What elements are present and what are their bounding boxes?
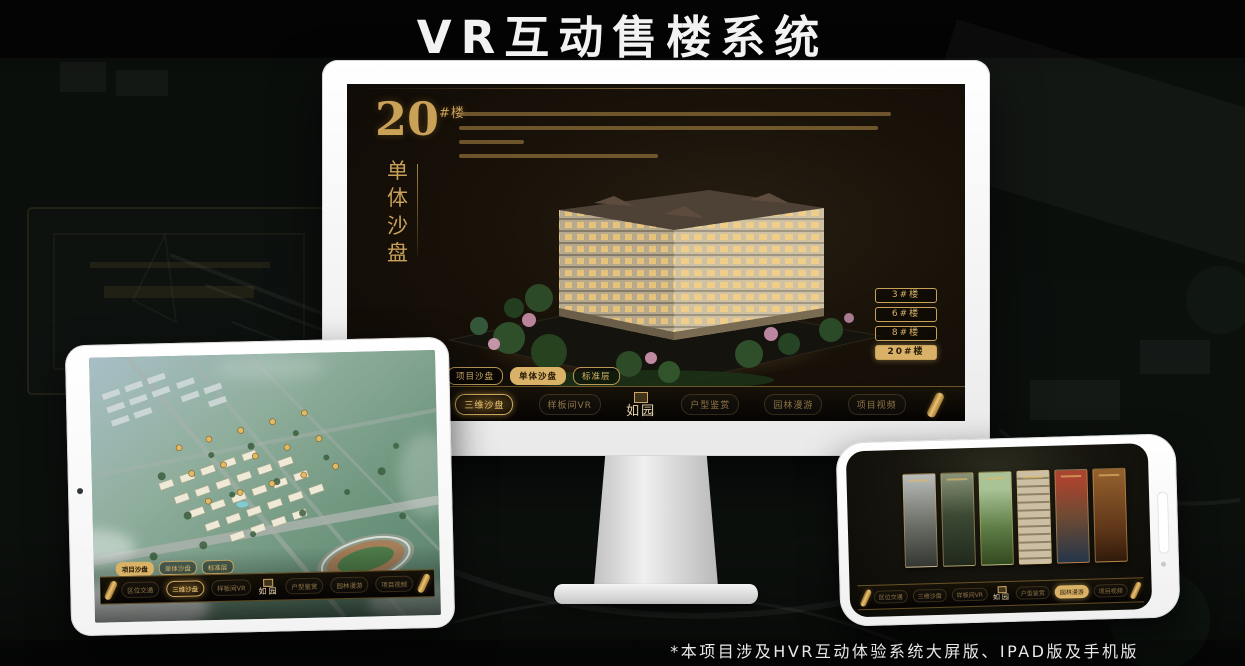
desktop-subtabs: 项目沙盘 单体沙盘 标准层 <box>447 367 620 385</box>
building-button-20[interactable]: 20#楼 <box>875 345 937 360</box>
nav-item-garden-roam[interactable]: 园林漫游 <box>764 394 822 415</box>
scene-card-4[interactable] <box>1016 470 1052 565</box>
phone-bottom-nav: 区位交通 三维沙盘 样板间VR 如园 户型鉴赏 园林漫游 项目视频 <box>857 577 1144 610</box>
ruyuan-logo: 如园 <box>993 586 1011 601</box>
nav-item-project-video[interactable]: 项目视频 <box>848 394 906 415</box>
poster-canvas: VR互动售楼系统 20#楼 单体沙盘 <box>0 0 1245 666</box>
building-button-3[interactable]: 3#楼 <box>875 288 937 303</box>
scroll-icon[interactable] <box>926 391 945 418</box>
scroll-icon[interactable] <box>859 588 872 607</box>
phone-screen: 区位交通 三维沙盘 样板间VR 如园 户型鉴赏 园林漫游 项目视频 <box>846 443 1153 617</box>
building-button-8[interactable]: 8#楼 <box>875 326 937 341</box>
nav-item-location[interactable]: 区位交通 <box>874 590 908 604</box>
scene-card-3[interactable] <box>978 471 1014 566</box>
page-title: VR互动售楼系统 <box>0 1 1245 66</box>
subtab-standard-floor[interactable]: 标准层 <box>202 560 234 575</box>
monitor-shadow <box>530 605 782 615</box>
nav-item-garden-roam[interactable]: 园林漫游 <box>330 577 368 594</box>
scene-card-6[interactable] <box>1092 468 1128 563</box>
scroll-icon[interactable] <box>416 573 431 594</box>
logo-text: 如园 <box>993 594 1011 601</box>
subtab-single-sandtable[interactable]: 单体沙盘 <box>510 367 566 385</box>
camera-icon <box>77 488 83 494</box>
scene-gallery <box>902 468 1128 568</box>
building-button-6[interactable]: 6#楼 <box>875 307 937 322</box>
nav-item-floorplans[interactable]: 户型鉴赏 <box>681 394 739 415</box>
nav-item-project-video[interactable]: 项目视频 <box>1094 584 1128 598</box>
monitor-stand-base <box>554 584 758 604</box>
nav-item-project-video[interactable]: 项目视频 <box>375 576 413 593</box>
subtab-standard-floor[interactable]: 标准层 <box>573 367 620 385</box>
nav-item-showroom-vr[interactable]: 样板间VR <box>539 394 601 415</box>
scene-card-2[interactable] <box>940 472 976 567</box>
tablet-device: 项目沙盘 单体沙盘 标准层 区位交通 三维沙盘 样板间VR 如园 户型鉴赏 园林… <box>65 337 456 637</box>
nav-item-showroom-vr[interactable]: 样板间VR <box>211 579 252 596</box>
scroll-icon[interactable] <box>1129 581 1142 600</box>
logo-text: 如园 <box>259 587 279 595</box>
nav-item-garden-roam[interactable]: 园林漫游 <box>1055 585 1089 599</box>
footnote-text: *本项目涉及HVR互动体验系统大屏版、IPAD版及手机版 <box>670 638 1139 662</box>
nav-item-floorplans[interactable]: 户型鉴赏 <box>1016 586 1050 600</box>
headline-divider <box>417 164 418 256</box>
headline-vertical-title: 单体沙盘 <box>387 158 411 267</box>
subtab-project-sandtable[interactable]: 项目沙盘 <box>447 367 503 385</box>
camera-icon <box>1161 562 1166 567</box>
subtab-project-sandtable[interactable]: 项目沙盘 <box>116 561 154 576</box>
headline-building-number: 20#楼 <box>375 96 465 142</box>
ruyuan-seal-icon <box>634 392 648 403</box>
building-model-render <box>419 148 889 393</box>
subtab-single-sandtable[interactable]: 单体沙盘 <box>159 560 197 575</box>
building-selector: 3#楼 6#楼 8#楼 20#楼 <box>875 288 937 360</box>
tablet-screen: 项目沙盘 单体沙盘 标准层 区位交通 三维沙盘 样板间VR 如园 户型鉴赏 园林… <box>89 350 441 623</box>
nav-item-3d-sandtable[interactable]: 三维沙盘 <box>455 394 513 415</box>
ruyuan-logo: 如园 <box>258 578 278 595</box>
ruyuan-logo: 如园 <box>626 392 656 418</box>
monitor-stand-neck <box>594 456 718 586</box>
phone-bezel-highlight <box>1157 492 1170 554</box>
phone-device: 区位交通 三维沙盘 样板间VR 如园 户型鉴赏 园林漫游 项目视频 <box>835 433 1180 626</box>
scene-card-1[interactable] <box>902 473 938 568</box>
scroll-icon[interactable] <box>103 580 118 601</box>
ruyuan-seal-icon <box>263 578 273 586</box>
nav-item-3d-sandtable[interactable]: 三维沙盘 <box>913 589 947 603</box>
nav-item-floorplans[interactable]: 户型鉴赏 <box>285 578 323 595</box>
nav-item-showroom-vr[interactable]: 样板间VR <box>951 588 988 602</box>
scene-card-5[interactable] <box>1054 469 1090 564</box>
nav-item-location[interactable]: 区位交通 <box>121 581 159 598</box>
nav-item-3d-sandtable[interactable]: 三维沙盘 <box>166 580 204 597</box>
logo-text: 如园 <box>626 405 656 418</box>
